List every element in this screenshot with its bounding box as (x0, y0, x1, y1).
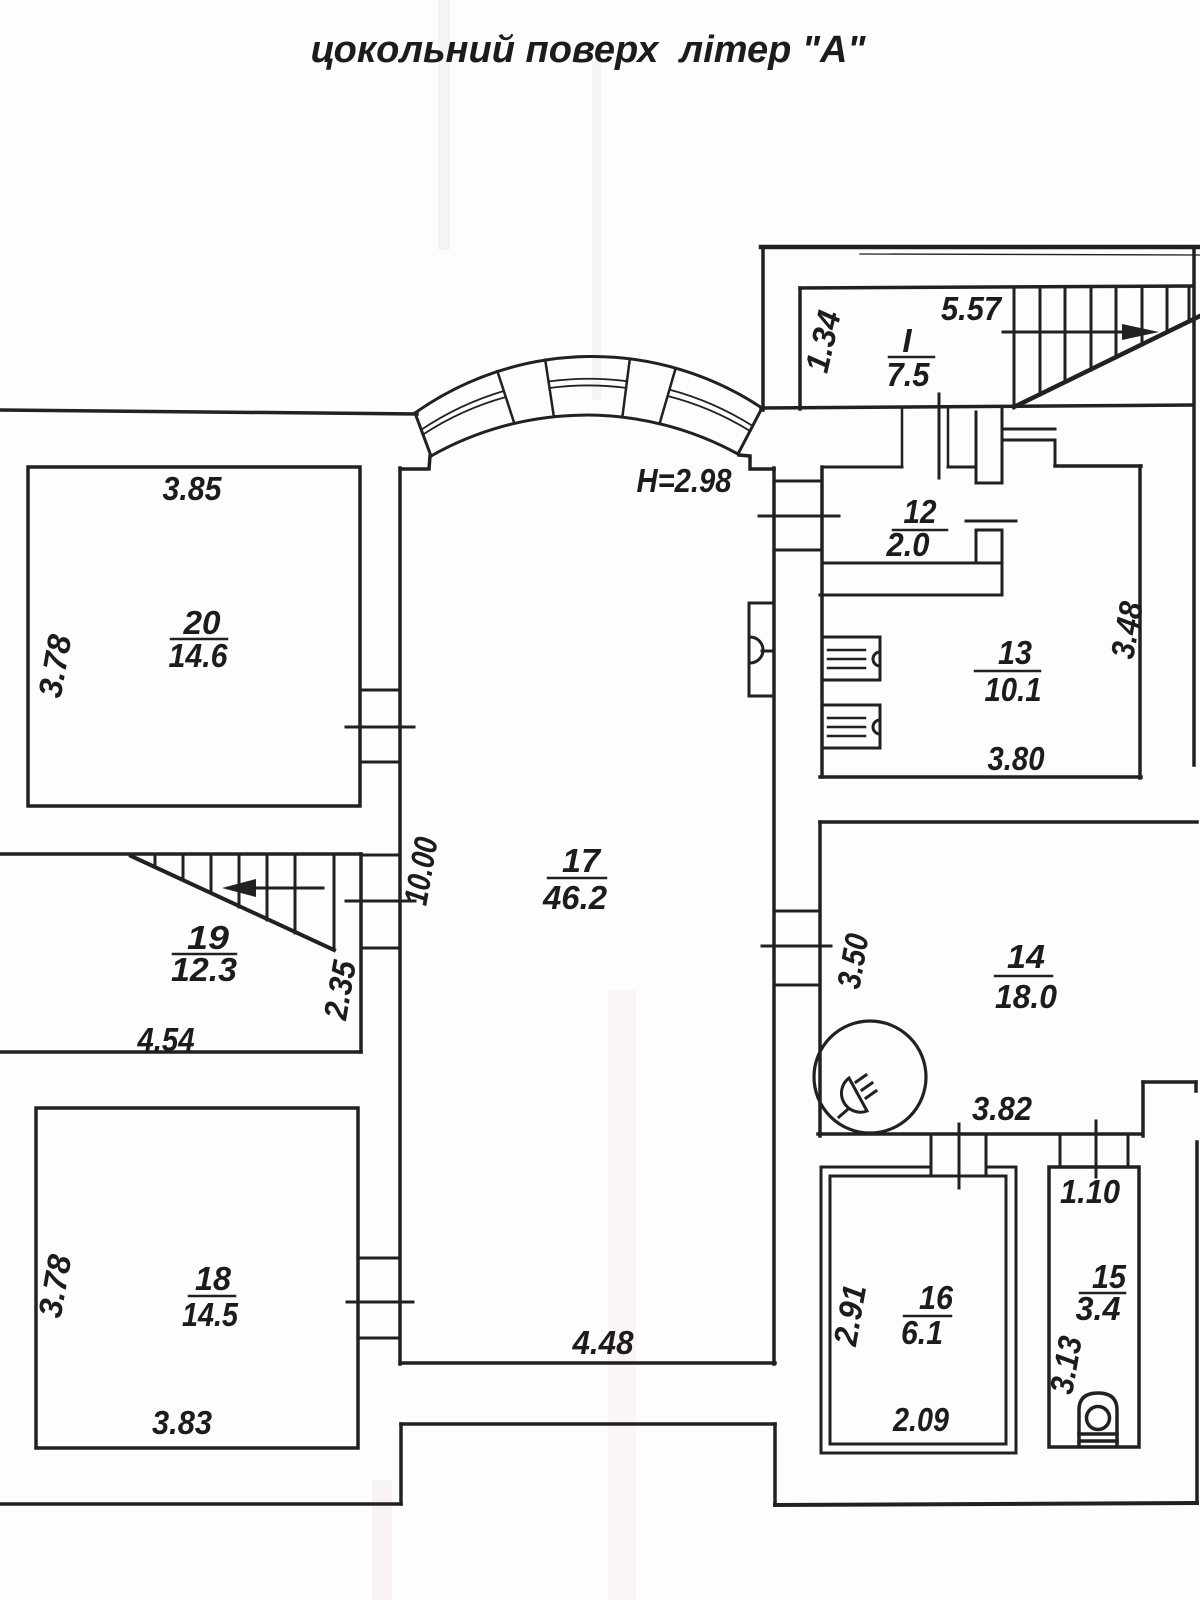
svg-text:H=2.98: H=2.98 (637, 462, 733, 499)
svg-text:5.57: 5.57 (941, 290, 1003, 327)
svg-text:3.83: 3.83 (152, 1404, 212, 1441)
svg-text:14.6: 14.6 (169, 637, 229, 674)
svg-text:18: 18 (195, 1260, 232, 1297)
svg-text:20: 20 (182, 604, 221, 641)
svg-text:I: I (902, 322, 912, 359)
svg-text:4.48: 4.48 (572, 1324, 635, 1361)
svg-text:12: 12 (904, 493, 938, 530)
svg-text:4.54: 4.54 (137, 1021, 195, 1058)
svg-text:13: 13 (998, 634, 1032, 671)
svg-text:3.4: 3.4 (1076, 1290, 1121, 1327)
svg-text:2.0: 2.0 (886, 526, 931, 563)
svg-text:3.82: 3.82 (972, 1090, 1033, 1127)
svg-text:3.85: 3.85 (163, 470, 223, 507)
svg-text:цокольний поверх літер "А": цокольний поверх літер "А" (311, 29, 867, 71)
svg-text:12.3: 12.3 (171, 951, 237, 988)
svg-text:17: 17 (562, 842, 602, 879)
svg-text:7.5: 7.5 (887, 356, 931, 393)
svg-text:14.5: 14.5 (182, 1296, 239, 1333)
svg-text:18.0: 18.0 (995, 978, 1058, 1015)
svg-text:16: 16 (919, 1279, 954, 1316)
svg-text:14: 14 (1007, 938, 1045, 975)
svg-text:46.2: 46.2 (542, 879, 608, 916)
svg-text:6.1: 6.1 (901, 1314, 943, 1351)
svg-text:1.10: 1.10 (1060, 1173, 1121, 1210)
svg-text:3.80: 3.80 (988, 740, 1046, 777)
svg-text:2.09: 2.09 (892, 1401, 949, 1438)
svg-text:10.1: 10.1 (985, 671, 1042, 708)
